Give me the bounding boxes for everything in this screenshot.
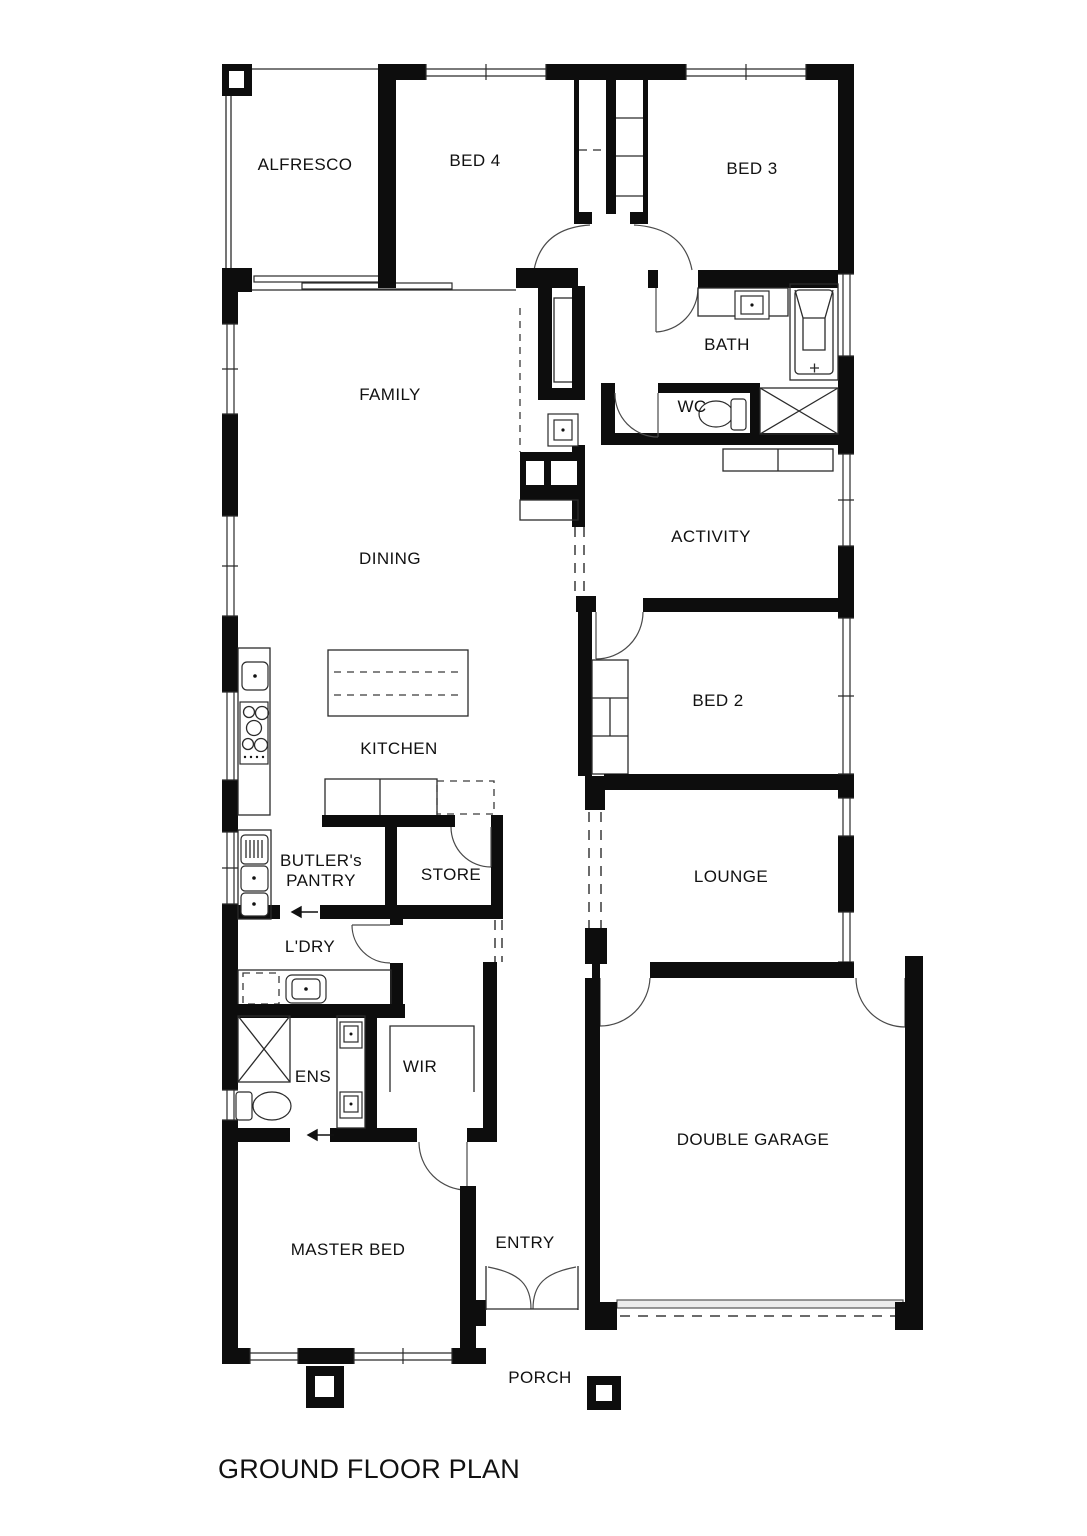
label-bed4: BED 4 [449, 151, 500, 170]
bed3-door-arc [634, 225, 692, 270]
label-entry: ENTRY [495, 1233, 554, 1252]
label-laundry: L'DRY [285, 937, 335, 956]
label-wc: WC [677, 397, 706, 416]
kitchen-island [328, 650, 468, 716]
label-alfresco: ALFRESCO [258, 155, 353, 174]
ensuite-fixtures [236, 1016, 474, 1128]
label-bed3: BED 3 [726, 159, 777, 178]
label-ensuite: ENS [295, 1067, 331, 1086]
master-bed-door-arc [419, 1142, 467, 1190]
label-activity: ACTIVITY [671, 527, 751, 546]
fridge-space [437, 781, 494, 814]
store-door-arc [451, 827, 491, 867]
label-kitchen: KITCHEN [360, 739, 437, 758]
sliding-door-panel [302, 283, 452, 289]
ens-toilet-tank [236, 1092, 252, 1120]
bed4-door-arc [534, 225, 590, 270]
entry-door-leaf [488, 1267, 531, 1309]
bedroom-robes [534, 80, 692, 270]
bath-fixtures [698, 284, 838, 380]
label-butlers-pantry-1: BUTLER's [280, 851, 362, 870]
laundry-door-arc [352, 925, 390, 963]
garage-internal-door-arc [600, 978, 650, 1026]
label-family: FAMILY [359, 385, 421, 404]
label-bath: BATH [704, 335, 750, 354]
alfresco-structure [222, 64, 516, 292]
label-store: STORE [421, 865, 481, 884]
label-lounge: LOUNGE [694, 867, 768, 886]
label-dining: DINING [359, 549, 421, 568]
bed2-lounge-walls [578, 598, 852, 978]
floor-plan-page: ALFRESCO BED 4 BED 3 FAMILY BATH WC ACTI… [0, 0, 1087, 1536]
washing-machine-space [243, 973, 279, 1004]
kitchen-area [238, 648, 494, 816]
floor-plan-drawing: ALFRESCO BED 4 BED 3 FAMILY BATH WC ACTI… [0, 0, 1087, 1536]
wc-door-arc [615, 393, 658, 437]
label-wir: WIR [403, 1057, 437, 1076]
label-bed2: BED 2 [692, 691, 743, 710]
bath-door [656, 288, 698, 332]
garage-panel-door [617, 1300, 903, 1308]
wc-area [601, 383, 848, 445]
pantry-entry-arrow [292, 907, 318, 917]
entry-door-leaf [533, 1267, 576, 1309]
kitchen-back-bench [325, 779, 437, 816]
label-garage: DOUBLE GARAGE [677, 1130, 830, 1149]
label-master-bed: MASTER BED [291, 1240, 406, 1259]
bed2-door-arc [596, 612, 643, 659]
hall-cupboards [520, 286, 585, 520]
label-butlers-pantry-2: PANTRY [286, 871, 356, 890]
label-porch: PORCH [508, 1368, 571, 1387]
garage-side-door-arc [856, 978, 905, 1027]
activity-area [572, 445, 838, 659]
windows [222, 64, 854, 1364]
ens-toilet [253, 1092, 291, 1120]
exterior-walls [222, 64, 854, 1364]
plan-title: GROUND FLOOR PLAN [218, 1454, 520, 1484]
master-suite-walls [222, 1004, 497, 1352]
sliding-door-panel [254, 276, 384, 282]
